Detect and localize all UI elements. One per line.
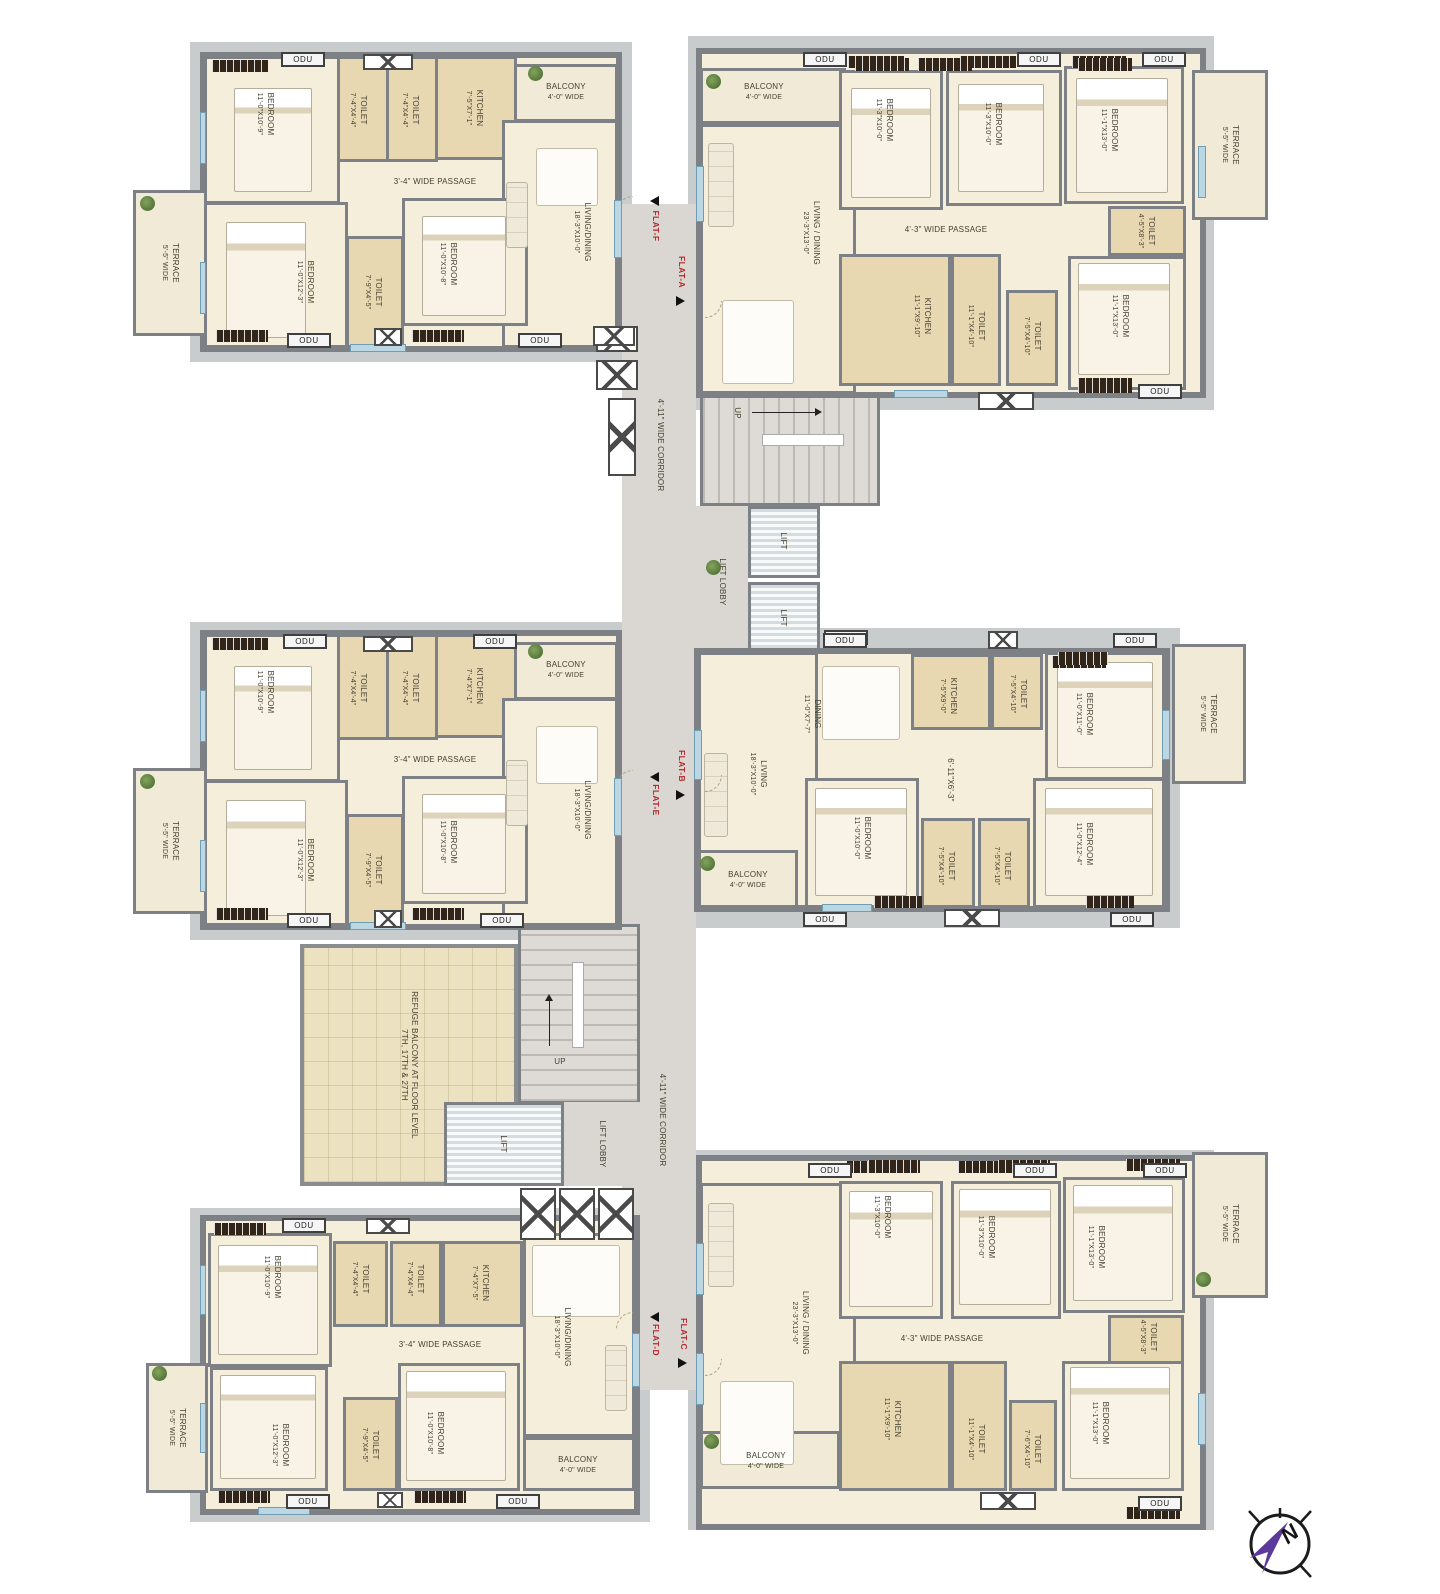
bed (1057, 662, 1153, 768)
room-toilet (951, 254, 1001, 386)
flat-b-entry-arrow-icon (676, 790, 685, 800)
wardrobe (216, 908, 268, 920)
service-shaft (377, 1492, 403, 1508)
bed (226, 800, 306, 916)
lift-lobby (564, 1102, 642, 1186)
sofa (506, 760, 528, 826)
bed (849, 1191, 933, 1307)
lift (748, 506, 820, 578)
service-shaft (366, 1218, 410, 1234)
passage-label: 6'-11"X6'-3" (940, 745, 960, 815)
room-balcony (700, 68, 846, 124)
service-shaft (363, 54, 413, 70)
flat-a-tag: FLAT-A (676, 240, 688, 304)
staircase (700, 388, 880, 506)
window (696, 166, 704, 222)
window (894, 390, 948, 398)
flat-d: BEDROOM11'-0"X10'-9" TOILET7'-4"X4'-4" T… (200, 1215, 640, 1515)
odu-unit: ODU (1138, 384, 1182, 399)
window (1198, 146, 1206, 198)
sofa (506, 182, 528, 248)
room-toilet (978, 818, 1030, 908)
flat-b-tag: FLAT-B (676, 734, 688, 798)
sofa (708, 1203, 734, 1287)
service-shaft (520, 1188, 556, 1240)
sofa (704, 753, 728, 837)
window (200, 262, 206, 314)
wardrobe (918, 58, 972, 71)
plant-icon (1196, 1272, 1211, 1287)
service-shaft (593, 326, 635, 346)
passage-label: 3'-4" WIDE PASSAGE (385, 1335, 495, 1355)
service-shaft (374, 910, 402, 928)
service-shaft (608, 398, 636, 476)
terrace (146, 1363, 208, 1493)
bed (1045, 788, 1153, 896)
plant-icon (706, 560, 721, 575)
wardrobe (218, 1491, 270, 1503)
dining-table (532, 1245, 620, 1317)
odu-unit: ODU (281, 52, 325, 67)
wardrobe (1078, 58, 1132, 71)
wardrobe (412, 908, 464, 920)
terrace (133, 190, 207, 336)
bed (815, 788, 907, 896)
service-shaft (598, 1188, 634, 1240)
room-toilet (390, 1241, 442, 1327)
window (696, 1353, 704, 1405)
odu-unit: ODU (518, 333, 562, 348)
room-toilet (1108, 1315, 1184, 1365)
odu-unit: ODU (808, 1163, 852, 1178)
passage-label: 4'-3" WIDE PASSAGE (891, 220, 1001, 240)
room-toilet (343, 1397, 398, 1491)
plant-icon (140, 196, 155, 211)
plant-icon (704, 1434, 719, 1449)
flat-c: LIVING / DINING23'-3"X13'-0" BEDROOM11'-… (696, 1155, 1206, 1530)
room-toilet (991, 654, 1043, 730)
bed (226, 222, 306, 338)
odu-unit: ODU (480, 913, 524, 928)
odu-unit: ODU (1017, 52, 1061, 67)
stair-landing (762, 434, 844, 446)
flat-a-entry-arrow-icon (676, 296, 685, 306)
odu-unit: ODU (287, 913, 331, 928)
odu-unit: ODU (283, 634, 327, 649)
lift (748, 582, 820, 654)
window (632, 1333, 640, 1387)
wardrobe (1086, 896, 1134, 908)
window (694, 730, 702, 780)
compass-icon: N (1218, 1496, 1338, 1592)
dining-table (720, 1381, 794, 1465)
room-kitchen (839, 1361, 951, 1491)
passage-label: 3'-4" WIDE PASSAGE (380, 750, 490, 770)
odu-unit: ODU (803, 912, 847, 927)
bed (959, 1189, 1051, 1305)
window (696, 1243, 704, 1295)
room-toilet (1009, 1400, 1057, 1491)
room-toilet (1006, 290, 1058, 386)
odu-unit: ODU (282, 1218, 326, 1233)
dining-table (536, 726, 598, 784)
room-toilet (333, 1241, 388, 1327)
room-toilet (1108, 206, 1186, 256)
wardrobe (1058, 652, 1108, 665)
room-toilet (921, 818, 975, 908)
window (1162, 710, 1170, 760)
room-toilet (951, 1361, 1007, 1491)
wardrobe (1078, 380, 1132, 393)
wardrobe (874, 896, 922, 908)
service-shaft (988, 631, 1018, 649)
room-toilet (386, 56, 438, 162)
up-arrow-icon (752, 412, 818, 413)
flat-e-tag: FLAT-E (650, 768, 662, 832)
odu-unit: ODU (1113, 633, 1157, 648)
floor-plan: 4'-11" WIDE CORRIDOR 4'-11" WIDE CORRIDO… (0, 0, 1440, 1594)
plant-icon (528, 644, 543, 659)
bed (406, 1371, 506, 1481)
bed (220, 1375, 316, 1479)
odu-unit: ODU (1143, 1163, 1187, 1178)
flat-f-tag: FLAT-F (650, 194, 662, 258)
bed (851, 88, 931, 198)
up-arrow-icon (549, 998, 550, 1046)
odu-unit: ODU (1138, 1496, 1182, 1511)
bed (422, 794, 506, 894)
odu-unit: ODU (473, 634, 517, 649)
bed (234, 88, 312, 192)
odu-unit: ODU (1013, 1163, 1057, 1178)
wardrobe (868, 1160, 920, 1173)
odu-unit: ODU (496, 1494, 540, 1509)
sofa (605, 1345, 627, 1411)
window (200, 840, 206, 892)
flat-d-tag: FLAT-D (650, 1308, 662, 1372)
wardrobe (412, 330, 464, 342)
terrace (133, 768, 207, 914)
service-shaft (363, 636, 413, 652)
service-shaft (559, 1188, 595, 1240)
odu-unit: ODU (823, 633, 867, 648)
bed (1073, 1185, 1173, 1301)
bed (422, 216, 506, 316)
plant-icon (528, 66, 543, 81)
room-kitchen (442, 1241, 523, 1327)
window (200, 1265, 206, 1315)
flat-c-tag: FLAT-C (678, 1302, 690, 1366)
odu-unit: ODU (286, 1494, 330, 1509)
bed (234, 666, 312, 770)
odu-unit: ODU (287, 333, 331, 348)
window (614, 200, 622, 258)
service-shaft (978, 392, 1034, 410)
passage-label: 4'-3" WIDE PASSAGE (887, 1329, 997, 1349)
wardrobe (214, 1223, 266, 1235)
terrace (1172, 644, 1246, 784)
flat-a: BALCONY4'-0" WIDE LIVING / DINING23'-3"X… (696, 48, 1206, 398)
wardrobe (414, 1491, 466, 1503)
service-shaft (980, 1492, 1036, 1510)
wardrobe (212, 60, 268, 72)
service-shaft (596, 360, 638, 390)
room-toilet (337, 56, 389, 162)
wardrobe (212, 638, 268, 650)
service-shaft (944, 909, 1000, 927)
odu-unit: ODU (1110, 912, 1154, 927)
bed (218, 1245, 318, 1355)
window (614, 778, 622, 836)
room-kitchen (839, 254, 951, 386)
room-kitchen (911, 654, 991, 730)
bed (1076, 78, 1168, 193)
plant-icon (700, 856, 715, 871)
sofa (708, 143, 734, 227)
odu-unit: ODU (803, 52, 847, 67)
wardrobe (216, 330, 268, 342)
flat-c-entry-arrow-icon (678, 1358, 687, 1368)
odu-unit: ODU (1142, 52, 1186, 67)
window (822, 904, 872, 912)
window (200, 690, 206, 742)
lift (444, 1102, 564, 1186)
dining-table (536, 148, 598, 206)
flat-b: LIVING18'-3"X10'-0" DINING11'-0"X7'-7" K… (694, 648, 1170, 912)
window (1198, 1393, 1206, 1445)
room-balcony (523, 1437, 635, 1491)
flat-e: BEDROOM11'-0"X10'-9" TOILET7'-4"X4'-4" T… (200, 630, 622, 930)
bed (1078, 263, 1170, 375)
plant-icon (706, 74, 721, 89)
wardrobe (855, 58, 909, 71)
passage-label: 3'-4" WIDE PASSAGE (380, 172, 490, 192)
lift-lobby (696, 506, 748, 656)
flat-f: BEDROOM11'-0"X10'-9" TOILET7'-4"X4'-4" T… (200, 52, 622, 352)
stair-landing (572, 962, 584, 1048)
dining-table (722, 300, 794, 384)
plant-icon (152, 1366, 167, 1381)
bed (958, 84, 1044, 192)
bed (1070, 1367, 1170, 1479)
window (200, 1403, 206, 1453)
window (200, 112, 206, 164)
dining-table (822, 666, 900, 740)
plant-icon (140, 774, 155, 789)
service-shaft (374, 328, 402, 346)
